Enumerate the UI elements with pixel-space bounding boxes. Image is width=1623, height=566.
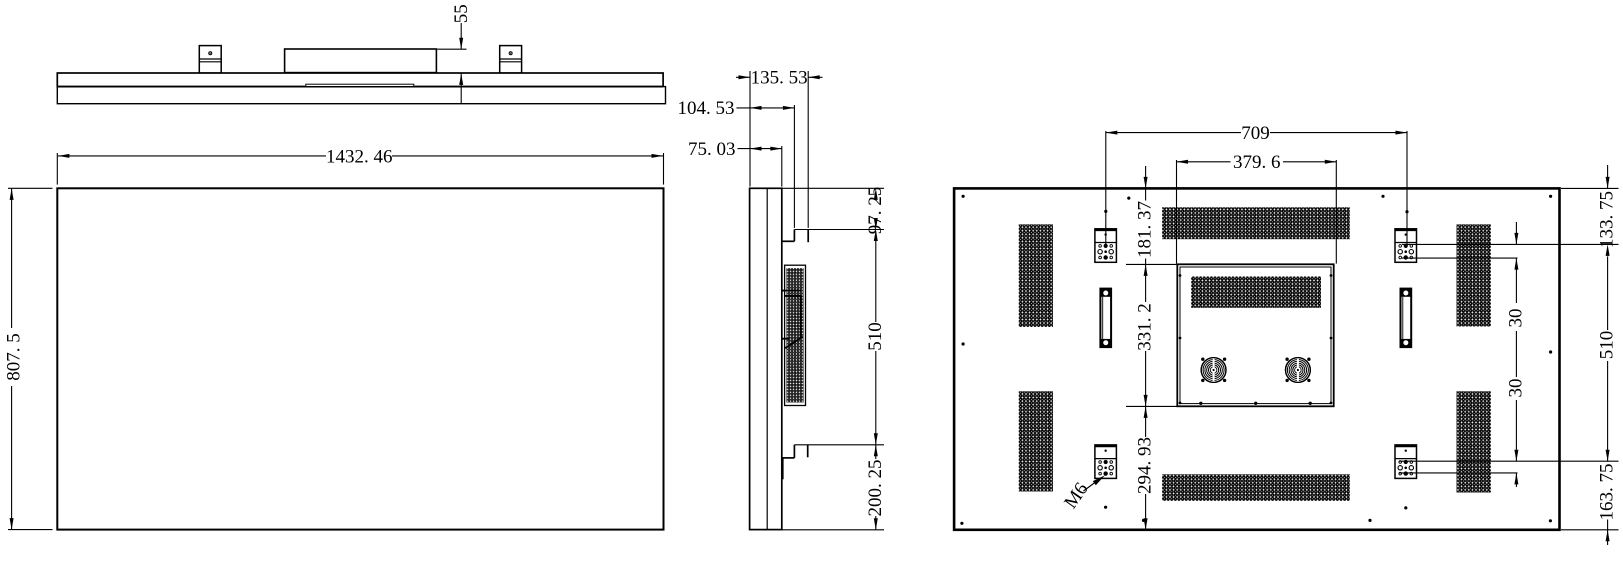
svg-text:510: 510 — [1597, 331, 1618, 360]
svg-text:30: 30 — [1505, 379, 1526, 398]
svg-text:163. 75: 163. 75 — [1597, 464, 1618, 521]
svg-text:709: 709 — [1241, 123, 1270, 144]
svg-text:294. 93: 294. 93 — [1135, 437, 1156, 494]
svg-text:97. 25: 97. 25 — [865, 187, 886, 235]
svg-text:104. 53: 104. 53 — [678, 98, 735, 119]
svg-text:510: 510 — [865, 322, 886, 351]
svg-text:200. 25: 200. 25 — [865, 460, 886, 517]
svg-text:133. 75: 133. 75 — [1597, 191, 1618, 248]
svg-text:331. 2: 331. 2 — [1135, 303, 1156, 351]
svg-text:75. 03: 75. 03 — [688, 139, 736, 160]
svg-text:181. 37: 181. 37 — [1135, 201, 1156, 258]
svg-text:30: 30 — [1505, 309, 1526, 328]
svg-text:55: 55 — [451, 4, 472, 23]
svg-text:1432. 46: 1432. 46 — [326, 146, 393, 167]
svg-text:807. 5: 807. 5 — [4, 333, 25, 381]
svg-text:379. 6: 379. 6 — [1233, 152, 1281, 173]
svg-text:135. 53: 135. 53 — [751, 68, 808, 89]
